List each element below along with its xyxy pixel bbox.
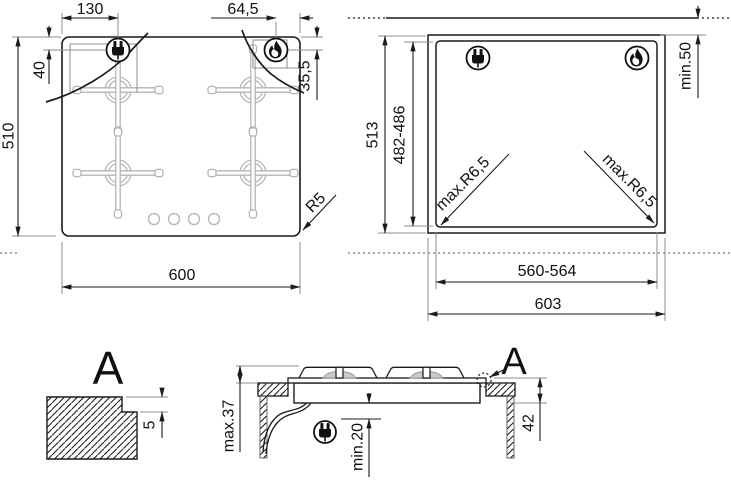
power-plug-icon	[314, 421, 336, 443]
hob-top-view: 130 64,5 40 35,5 510 600 R5	[1, 1, 337, 294]
cutout-plan-view: 513 482-486 min.50 max.R6,5 max.R6,5 560…	[348, 6, 731, 321]
dim-worktop-width: 603	[535, 296, 562, 313]
dim-plug-offset-x: 130	[77, 1, 104, 18]
corner-detail-view: A 5	[47, 342, 168, 459]
glass-top-section	[288, 378, 486, 383]
cutout-outline	[436, 41, 657, 227]
dim-hob-depth: 510	[1, 123, 18, 150]
flame-icon	[265, 39, 288, 62]
dim-installation-depth: 42	[521, 414, 538, 432]
hob-installation-drawing: 130 64,5 40 35,5 510 600 R5	[0, 0, 731, 480]
detail-label: A	[93, 342, 124, 394]
dim-height-above-worktop: max.37	[221, 400, 238, 453]
dim-detail-step: 5	[142, 420, 159, 429]
dim-hob-corner-radius: R5	[303, 190, 330, 217]
dim-worktop-depth: 513	[365, 122, 382, 149]
hob-body-section	[294, 383, 480, 403]
power-plug-icon	[107, 39, 130, 62]
dim-plug-offset-y: 40	[32, 61, 49, 79]
dim-cutout-width: 560-564	[518, 263, 577, 280]
dim-clearance-below: min.20	[350, 423, 367, 471]
power-plug-icon	[467, 47, 490, 70]
section-detail-label: A	[501, 341, 527, 383]
worktop-section-right	[486, 383, 515, 396]
section-view: A max.37 min.20 42	[221, 341, 548, 477]
cabinet-side-right	[507, 396, 514, 458]
dim-hob-width: 600	[169, 267, 196, 284]
dim-wall-clearance: min.50	[678, 42, 695, 90]
worktop-section-left	[258, 383, 288, 396]
drawing-canvas: 130 64,5 40 35,5 510 600 R5	[0, 0, 731, 480]
dim-flame-offset-y: 35,5	[297, 60, 314, 91]
dim-cutout-depth: 482-486	[392, 106, 409, 165]
dim-flame-offset-x: 64,5	[227, 1, 258, 18]
flame-icon	[626, 47, 649, 70]
worktop-edge-detail	[47, 397, 137, 459]
